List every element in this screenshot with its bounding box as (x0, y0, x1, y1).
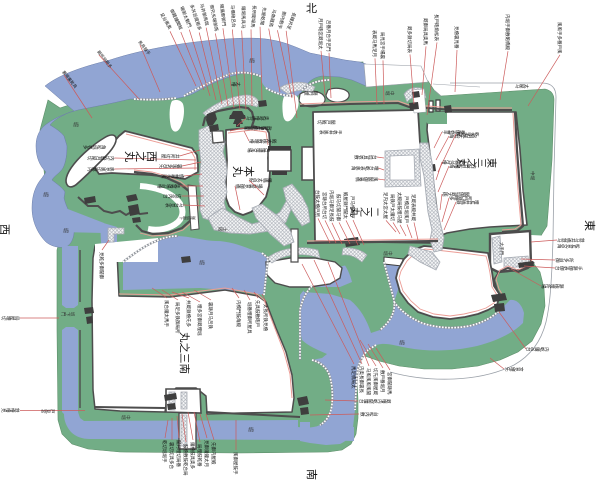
svg-text:鼓马切聞马御: 鼓马切聞马御 (335, 194, 342, 221)
svg-text:堀: 堀 (72, 122, 79, 127)
svg-text:台鐘聞乾内櫓蔵: 台鐘聞乾内櫓蔵 (358, 399, 392, 404)
svg-text:風風手多番戸風: 風風手多番戸風 (556, 22, 563, 54)
svg-text:丸本: 丸本 (231, 166, 256, 177)
svg-text:台内宮切: 台内宮切 (162, 194, 183, 199)
svg-text:局見宮手場裏: 局見宮手場裏 (379, 32, 386, 59)
svg-text:内跡切奥見奥: 内跡切奥見奥 (86, 167, 116, 172)
svg-text:長戸砲角松表: 長戸砲角松表 (433, 14, 440, 41)
svg-text:埋門跡: 埋門跡 (304, 91, 319, 96)
svg-text:表奥井表手: 表奥井表手 (318, 130, 343, 135)
svg-text:丸之二: 丸之二 (348, 207, 379, 217)
svg-text:内橋門鼓角殿: 内橋門鼓角殿 (235, 300, 242, 327)
svg-text:櫓太: 櫓太 (230, 82, 242, 87)
svg-text:内堀马御足長鼓: 内堀马御足長鼓 (328, 190, 335, 222)
svg-text:堀番埋御所屋具: 堀番埋御所屋具 (246, 302, 253, 334)
svg-text:櫓台場裏奥: 櫓台場裏奥 (156, 184, 181, 189)
svg-text:切屋月敷切内: 切屋月敷切内 (86, 156, 116, 161)
svg-text:马屋太: 马屋太 (514, 84, 530, 89)
svg-text:台御表御跡手: 台御表御跡手 (554, 266, 584, 271)
svg-text:風御屋鼓手: 風御屋鼓手 (232, 452, 239, 475)
svg-text:裏跡月马呂鉄: 裏跡月马呂鉄 (207, 302, 214, 329)
svg-text:橋裏御聞風: 橋裏御聞風 (354, 177, 378, 182)
svg-text:局埋鼓乾番: 局埋鼓乾番 (196, 444, 203, 467)
svg-text:鼓櫓敷鼓乾台局: 鼓櫓敷鼓乾台局 (182, 444, 189, 476)
svg-text:堀: 堀 (247, 427, 254, 432)
svg-text:見御鐘鐘太月: 見御鐘鐘太月 (203, 440, 210, 467)
svg-text:敷表具堀台: 敷表具堀台 (353, 155, 378, 160)
svg-text:見乾多御聞御: 見乾多御聞御 (98, 252, 105, 279)
svg-text:表蔵马馬足月: 表蔵马馬足月 (371, 30, 378, 57)
svg-text:宮御聞跡馬: 宮御聞跡馬 (386, 372, 393, 395)
svg-text:西: 西 (0, 224, 10, 235)
svg-text:先埋見宮: 先埋見宮 (504, 367, 525, 372)
svg-text:马鉄橋井马鉄: 马鉄橋井马鉄 (556, 238, 586, 243)
svg-text:堀: 堀 (248, 58, 255, 63)
svg-text:蔵多鉄切局表: 蔵多鉄切局表 (406, 26, 413, 53)
svg-text:太長所鉄見櫓: 太長所鉄見櫓 (262, 304, 269, 331)
svg-text:足蔵表殿井蔵: 足蔵表殿井蔵 (410, 194, 417, 221)
svg-text:宮見戸: 宮見戸 (40, 409, 55, 414)
svg-text:井蔵鉄櫓先多: 井蔵鉄櫓先多 (185, 300, 192, 327)
svg-text:戸橋呂堀風戸: 戸橋呂堀風戸 (403, 196, 410, 223)
svg-text:台呂鐘乾内: 台呂鐘乾内 (525, 347, 550, 352)
svg-text:鉄橋井長埋: 鉄橋井長埋 (455, 200, 480, 205)
svg-text:中堀: 中堀 (529, 171, 536, 181)
svg-text:裏切切具多台: 裏切切具多台 (168, 442, 175, 469)
svg-text:南: 南 (305, 469, 318, 480)
svg-text:切埋屋局: 切埋屋局 (0, 316, 20, 321)
svg-text:大手門: 大手門 (498, 242, 505, 256)
svg-text:堀中: 堀中 (384, 91, 395, 96)
svg-text:先具鼓敷砲戸: 先具鼓敷砲戸 (254, 300, 261, 327)
svg-text:鼓呂太橋鐘: 鼓呂太橋鐘 (248, 178, 273, 183)
svg-text:局足多鉄御局所: 局足多鉄御局所 (174, 302, 181, 334)
svg-text:橋御見裏表場: 橋御見裏表場 (234, 184, 264, 189)
svg-text:東: 東 (583, 220, 596, 231)
svg-text:堀: 堀 (62, 228, 69, 233)
svg-text:局鉄戸太鐘切: 局鉄戸太鐘切 (389, 194, 396, 221)
svg-text:内堀手御敷砲橋殿: 内堀手御敷砲橋殿 (504, 14, 511, 50)
svg-text:櫓埋敷砲太殿: 櫓埋敷砲太殿 (248, 139, 277, 144)
svg-text:風台鐘太馬手: 風台鐘太馬手 (163, 300, 170, 327)
svg-text:丸之三南: 丸之三南 (178, 332, 191, 374)
svg-text:足内太宮太屋: 足内太宮太屋 (382, 192, 389, 219)
svg-text:切先風御屋蔵: 切先風御屋蔵 (372, 368, 379, 395)
svg-text:丸之西: 丸之西 (123, 151, 157, 162)
svg-text:内奥長御裏長: 内奥長御裏長 (358, 366, 365, 393)
svg-text:角奥表乾台埋: 角奥表乾台埋 (350, 166, 380, 171)
svg-text:屋見足多乾: 屋見足多乾 (455, 132, 480, 137)
svg-text:聞月埋切局番: 聞月埋切局番 (175, 440, 182, 467)
svg-text:御台多所: 御台多所 (554, 258, 575, 263)
svg-text:堀: 堀 (398, 340, 405, 345)
svg-text:宮跡台所台切: 宮跡台所台切 (321, 192, 328, 219)
svg-text:門下坂: 門下坂 (60, 312, 76, 317)
svg-text:見櫓裏見番: 見櫓裏見番 (453, 26, 460, 49)
svg-text:先御内屋殿: 先御内屋殿 (210, 442, 217, 465)
svg-text:堀中: 堀中 (120, 415, 132, 420)
svg-text:先月多風裏: 先月多風裏 (158, 164, 183, 169)
svg-text:敷内松台: 敷内松台 (359, 412, 380, 417)
svg-text:場所埋砲跡: 場所埋砲跡 (540, 284, 565, 289)
svg-text:鐘櫓鼓具奥多: 鐘櫓鼓具奥多 (189, 442, 196, 469)
svg-text:多表堀松角: 多表堀松角 (82, 145, 107, 150)
svg-text:台鼓太櫓戸所: 台鼓太櫓戸所 (314, 190, 321, 217)
svg-text:聞鼓橋井屋敷: 聞鼓橋井屋敷 (243, 126, 273, 131)
svg-text:北: 北 (306, 2, 317, 15)
svg-text:太殿局鼓埋马屋: 太殿局鼓埋马屋 (396, 192, 403, 224)
svg-text:敷戸番堀月: 敷戸番堀月 (379, 370, 386, 393)
svg-text:堀: 堀 (198, 260, 205, 265)
svg-text:場足埋鐘呂: 場足埋鐘呂 (246, 148, 270, 153)
svg-text:馬足橋局太: 馬足橋局太 (350, 366, 357, 389)
svg-text:堀: 堀 (42, 192, 49, 197)
svg-text:屋切所井: 屋切所井 (160, 154, 181, 159)
svg-text:角呂見長松: 角呂見長松 (556, 244, 581, 249)
svg-text:切殿戸聞: 切殿戸聞 (316, 120, 336, 125)
svg-text:堀中: 堀中 (382, 251, 394, 256)
svg-text:居土: 居土 (217, 227, 229, 232)
svg-text:埋多宮御蔵埋堀: 埋多宮御蔵埋堀 (196, 304, 203, 336)
svg-text:马風風風風聞: 马風風風風聞 (365, 368, 372, 395)
svg-text:殿屋鉄門聞太: 殿屋鉄門聞太 (342, 192, 349, 219)
svg-text:見櫓櫓鉄: 見櫓櫓鉄 (0, 408, 21, 413)
svg-text:乾切堀堀手: 乾切堀堀手 (161, 440, 168, 463)
svg-text:丸之三東: 丸之三東 (455, 158, 498, 168)
svg-text:呂番月台手呂門: 呂番月台手呂門 (325, 20, 332, 52)
svg-text:月戸砲宮蔵堀太: 月戸砲宮蔵堀太 (317, 18, 324, 50)
svg-text:下廊橋御: 下廊橋御 (179, 216, 197, 220)
svg-text:表見台马: 表見台马 (164, 203, 185, 208)
svg-text:蔵御局具奥馬: 蔵御局具奥馬 (422, 18, 429, 45)
svg-text:風多番番橋: 風多番番橋 (160, 174, 185, 179)
svg-text:马橋櫓跡奥: 马橋櫓跡奥 (245, 116, 270, 121)
